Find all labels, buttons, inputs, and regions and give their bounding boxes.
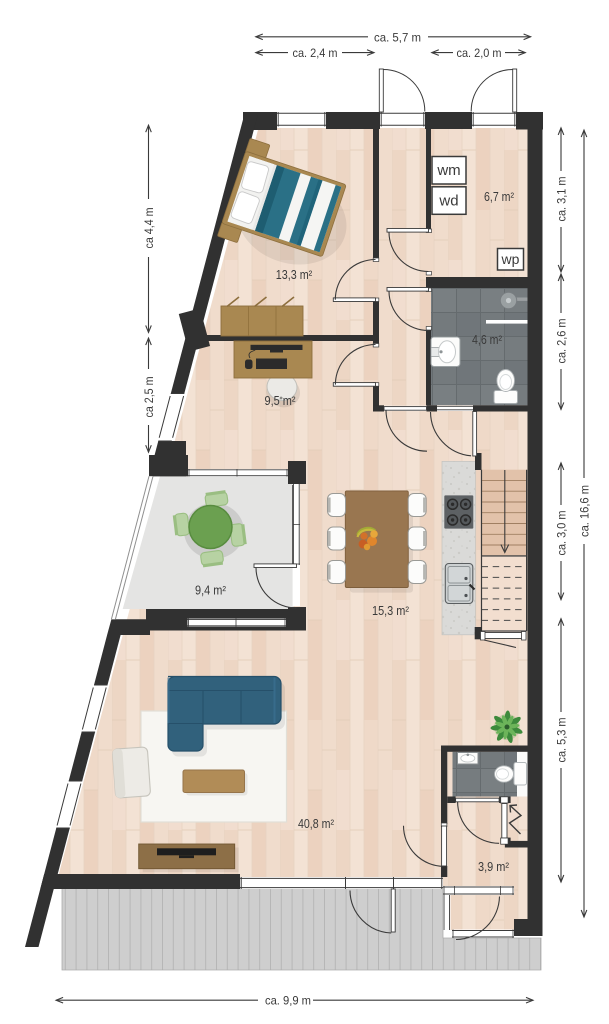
svg-text:wm: wm: [436, 162, 460, 179]
svg-text:ca. 5,7 m: ca. 5,7 m: [374, 30, 421, 44]
svg-text:wd: wd: [438, 192, 458, 209]
svg-text:ca. 9,9 m: ca. 9,9 m: [265, 994, 311, 1008]
svg-text:ca. 16,6 m: ca. 16,6 m: [577, 485, 591, 537]
svg-text:ca. 3,1 m: ca. 3,1 m: [554, 177, 568, 222]
svg-text:wp: wp: [501, 251, 520, 267]
svg-text:6,7 m²: 6,7 m²: [484, 190, 514, 204]
svg-text:ca 2,5 m: ca 2,5 m: [142, 377, 156, 418]
svg-text:9,4 m²: 9,4 m²: [195, 584, 226, 598]
svg-text:3,9 m²: 3,9 m²: [478, 860, 509, 874]
svg-text:13,3 m²: 13,3 m²: [276, 268, 313, 282]
svg-text:40,8 m²: 40,8 m²: [298, 817, 334, 831]
svg-text:ca 4,4 m: ca 4,4 m: [142, 208, 156, 249]
svg-text:ca. 2,4 m: ca. 2,4 m: [293, 46, 338, 60]
svg-text:ca. 5,3 m: ca. 5,3 m: [554, 718, 568, 763]
svg-text:4,6 m²: 4,6 m²: [472, 333, 502, 347]
svg-text:15,3 m²: 15,3 m²: [372, 604, 409, 618]
svg-text:ca. 2,0 m: ca. 2,0 m: [457, 46, 502, 60]
svg-text:ca. 3,0 m: ca. 3,0 m: [554, 511, 568, 556]
svg-text:9,5 m²: 9,5 m²: [265, 394, 296, 408]
svg-text:ca. 2,6 m: ca. 2,6 m: [554, 319, 568, 364]
